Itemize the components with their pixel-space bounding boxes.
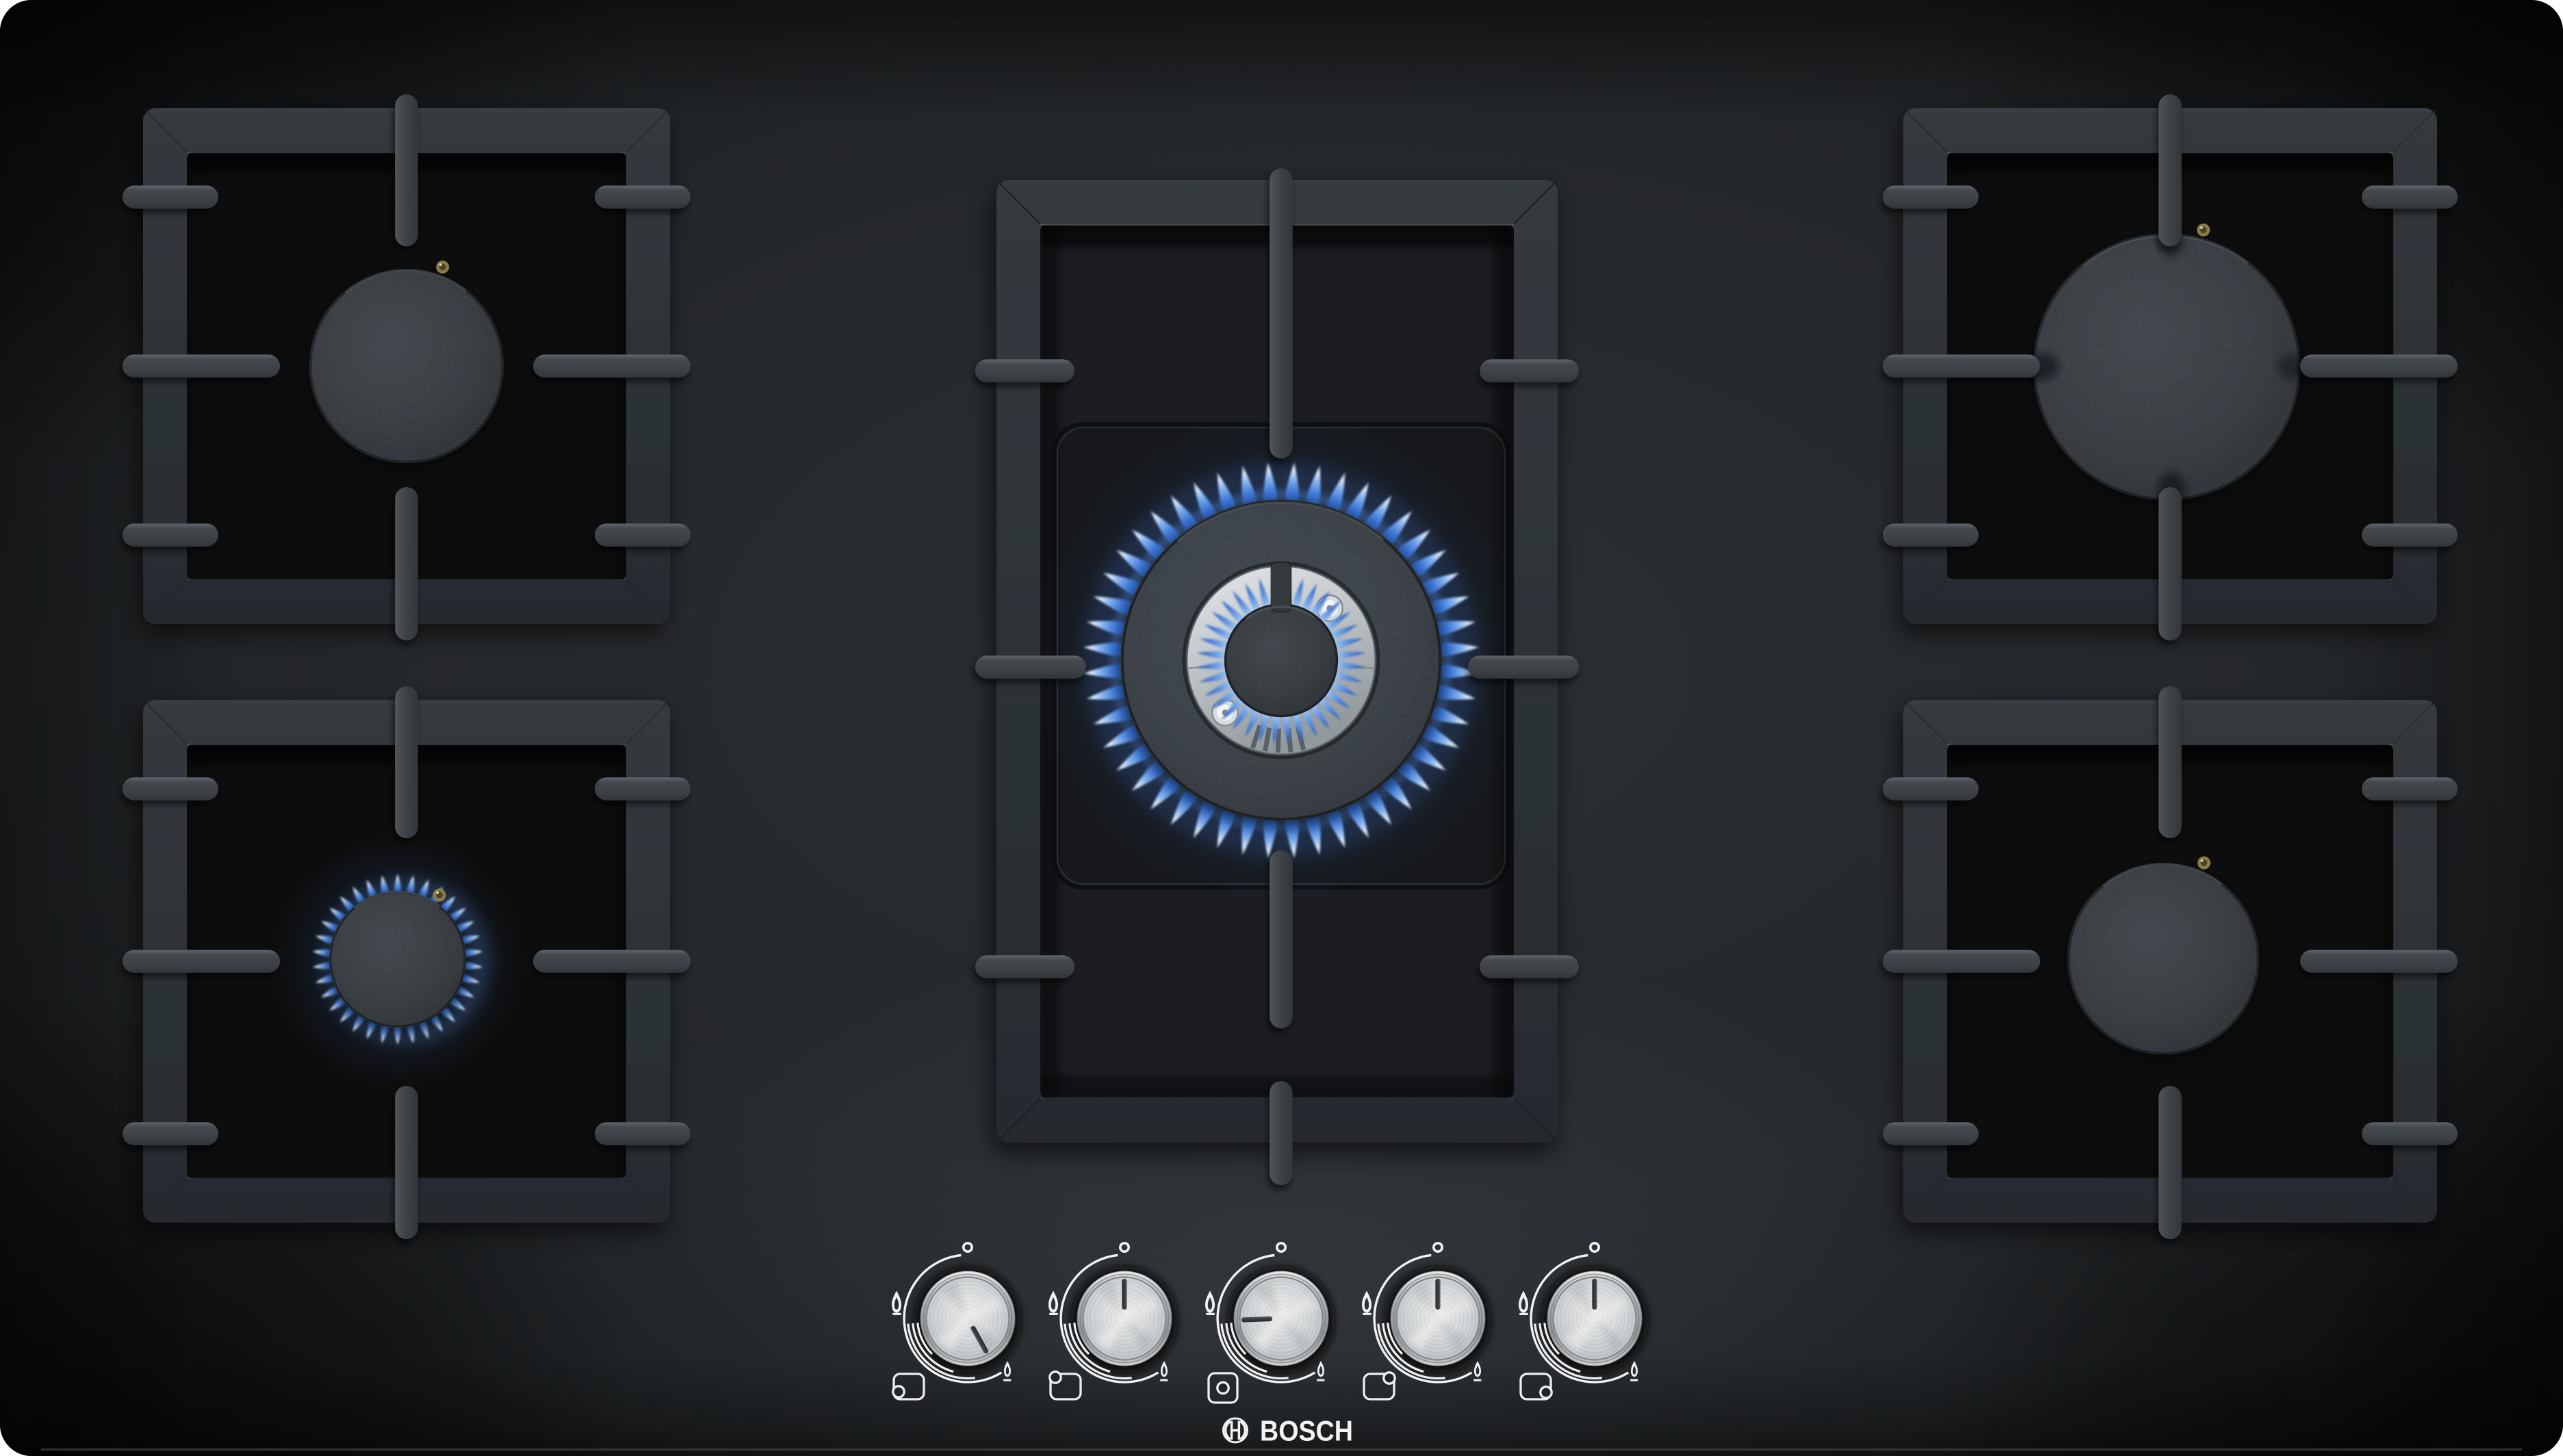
svg-text:BOSCH: BOSCH xyxy=(1260,1415,1353,1447)
